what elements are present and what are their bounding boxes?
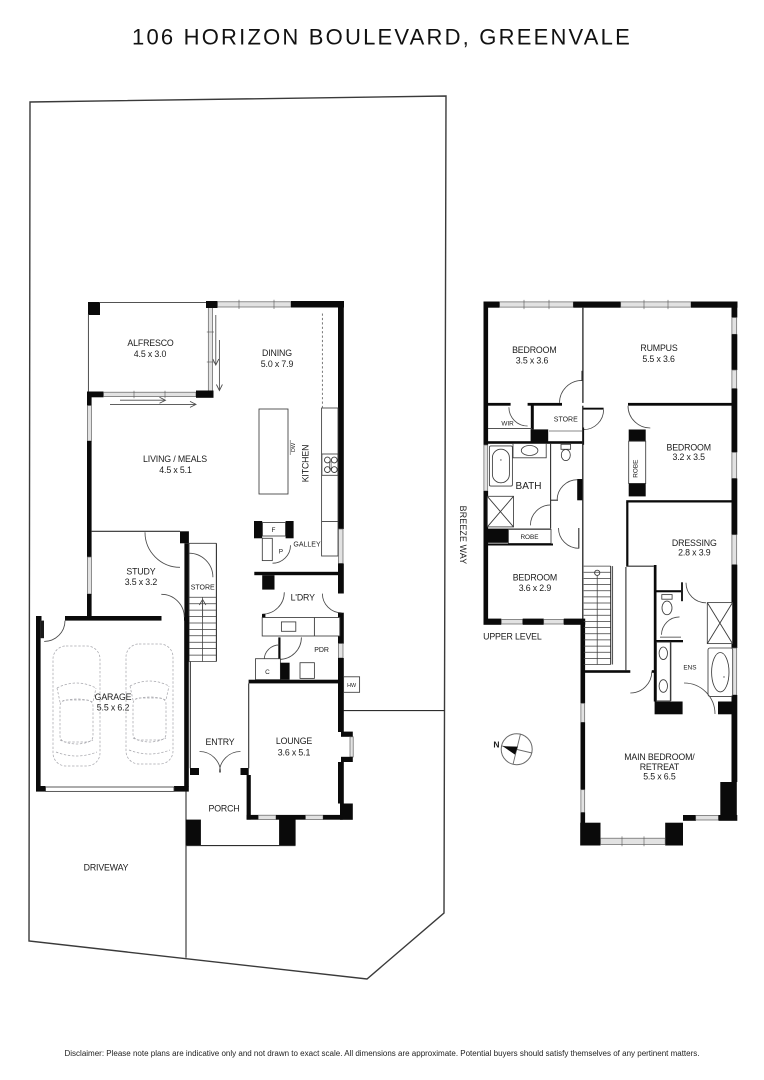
svg-text:BEDROOM: BEDROOM xyxy=(666,442,710,452)
svg-text:STUDY: STUDY xyxy=(126,566,155,576)
svg-text:4.5 x 5.1: 4.5 x 5.1 xyxy=(159,465,192,475)
svg-text:GALLEY: GALLEY xyxy=(293,542,321,549)
svg-text:PORCH: PORCH xyxy=(208,804,239,814)
svg-text:ALFRESCO: ALFRESCO xyxy=(127,338,174,348)
svg-text:KITCHEN: KITCHEN xyxy=(301,445,311,483)
svg-text:3.6 x 5.1: 3.6 x 5.1 xyxy=(278,747,311,757)
svg-text:UPPER LEVEL: UPPER LEVEL xyxy=(483,632,542,642)
svg-text:LIVING / MEALS: LIVING / MEALS xyxy=(143,454,207,464)
svg-text:BATH: BATH xyxy=(516,481,542,492)
svg-text:RETREAT: RETREAT xyxy=(640,762,680,772)
svg-text:N: N xyxy=(493,740,499,750)
svg-text:ENTRY: ENTRY xyxy=(206,737,235,747)
svg-text:106 HORIZON BOULEVARD, GREENVA: 106 HORIZON BOULEVARD, GREENVALE xyxy=(132,25,632,50)
svg-text:5.5 x 6.5: 5.5 x 6.5 xyxy=(643,772,676,782)
svg-text:STORE: STORE xyxy=(191,585,215,592)
svg-text:BREEZE WAY: BREEZE WAY xyxy=(458,506,468,565)
svg-text:Disclaimer: Please note plans: Disclaimer: Please note plans are indica… xyxy=(65,1049,700,1058)
svg-text:MAIN BEDROOM/: MAIN BEDROOM/ xyxy=(624,752,695,762)
svg-text:5.5 x 6.2: 5.5 x 6.2 xyxy=(97,702,130,712)
svg-text:3.5 x 3.2: 3.5 x 3.2 xyxy=(125,577,158,587)
svg-text:5.5 x 3.6: 5.5 x 3.6 xyxy=(642,354,675,364)
svg-text:3.2 x 3.5: 3.2 x 3.5 xyxy=(672,452,705,462)
svg-text:BEDROOM: BEDROOM xyxy=(512,345,556,355)
svg-text:LOUNGE: LOUNGE xyxy=(276,736,313,746)
svg-text:ENS: ENS xyxy=(683,664,696,671)
svg-text:L'DRY: L'DRY xyxy=(291,593,316,603)
svg-text:DW: DW xyxy=(291,442,297,452)
svg-text:DRESSING: DRESSING xyxy=(672,538,717,548)
svg-text:3.5 x 3.6: 3.5 x 3.6 xyxy=(516,355,549,365)
svg-text:3.6 x 2.9: 3.6 x 2.9 xyxy=(519,583,552,593)
svg-text:ROBE: ROBE xyxy=(520,534,538,541)
svg-text:ROBE: ROBE xyxy=(633,460,640,478)
svg-text:WIR: WIR xyxy=(501,421,514,428)
svg-text:F: F xyxy=(272,527,276,534)
svg-text:C: C xyxy=(265,669,270,676)
svg-text:STORE: STORE xyxy=(554,416,578,423)
svg-text:5.0 x 7.9: 5.0 x 7.9 xyxy=(261,359,294,369)
svg-text:DINING: DINING xyxy=(262,348,292,358)
svg-text:4.5 x 3.0: 4.5 x 3.0 xyxy=(134,349,167,359)
svg-text:2.8 x 3.9: 2.8 x 3.9 xyxy=(678,547,711,557)
svg-text:BEDROOM: BEDROOM xyxy=(513,572,557,582)
svg-text:RUMPUS: RUMPUS xyxy=(640,343,678,353)
svg-text:PDR: PDR xyxy=(314,647,329,654)
svg-text:DRIVEWAY: DRIVEWAY xyxy=(84,863,129,873)
svg-text:HW: HW xyxy=(347,683,357,689)
svg-text:P: P xyxy=(279,549,283,556)
